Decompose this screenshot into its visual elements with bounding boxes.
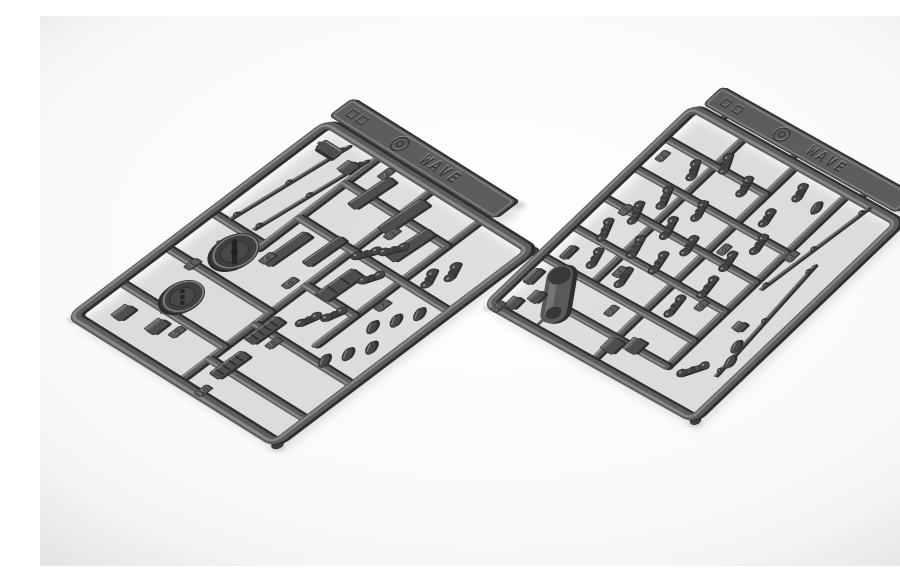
product-photo-two-sprues: WAVEWAVE11224455668899771010WAVEWAVE1010… [40, 16, 900, 566]
vignette-overlay [40, 16, 900, 566]
sprue-photo-canvas: WAVEWAVE11224455668899771010WAVEWAVE1010… [40, 16, 900, 566]
